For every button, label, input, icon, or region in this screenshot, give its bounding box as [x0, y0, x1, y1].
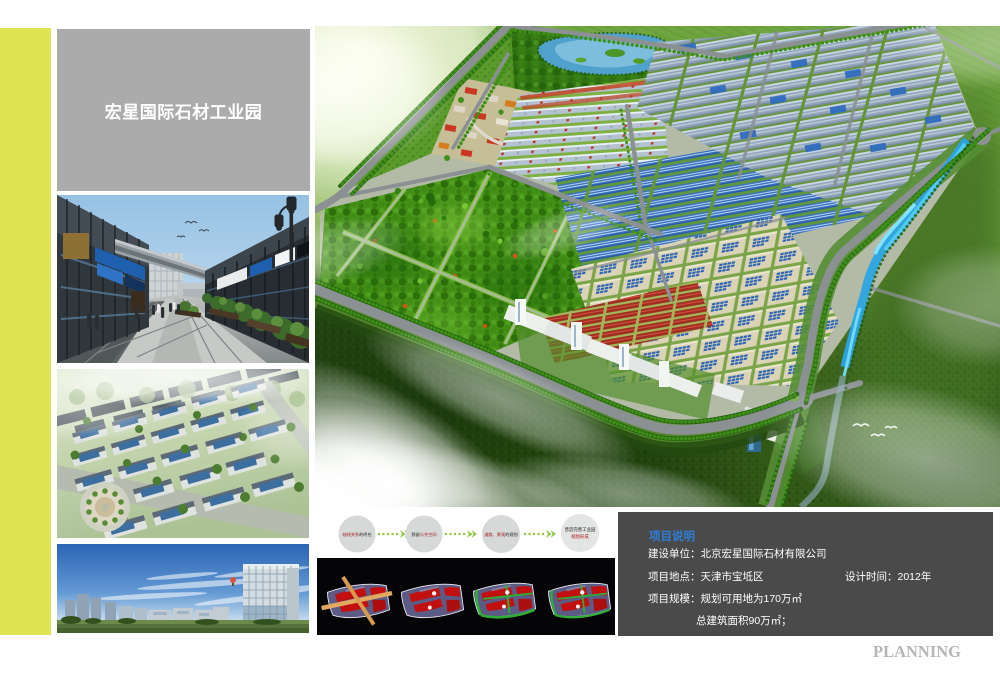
svg-text:道路、景观的规划: 道路、景观的规划 — [484, 531, 518, 538]
svg-text:轴线关系的呼应: 轴线关系的呼应 — [342, 531, 371, 538]
svg-text:规划形成: 规划形成 — [571, 533, 589, 540]
svg-text:预留公共空间: 预留公共空间 — [411, 531, 436, 538]
svg-text:营造完善工业园: 营造完善工业园 — [565, 526, 596, 533]
